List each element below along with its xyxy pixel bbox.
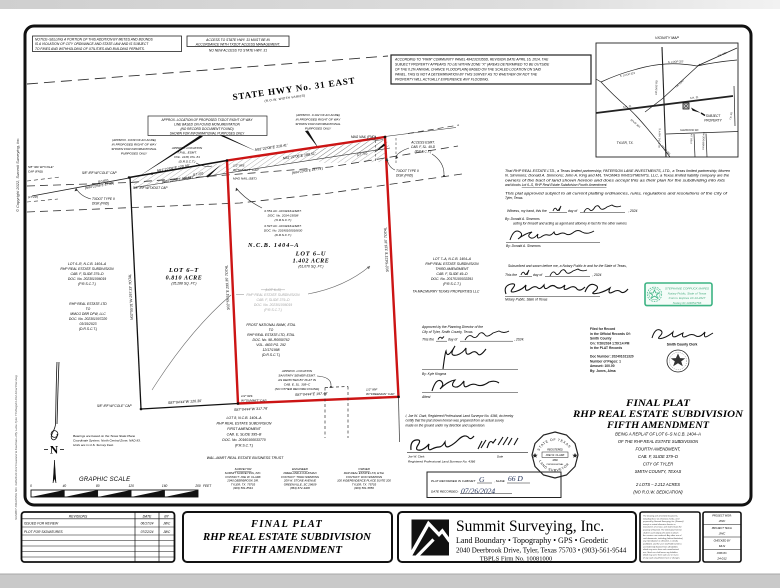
svg-text:NOTICE–SELLING A PORTION OF: NOTICE–SELLING A PORTION OF THIS ADDITIO… [35,38,153,42]
svg-text:(APPROX. 0.039 OF AN ACRE): (APPROX. 0.039 OF AN ACRE) [112,138,156,142]
svg-text:DOC. No. 2014-23008: DOC. No. 2014-23008 [268,214,299,218]
svg-text:06/17/24: 06/17/24 [141,522,154,526]
svg-text:ACCORDANCE WITH TXDOT ACCES: ACCORDANCE WITH TXDOT ACCESS MANAGEMENT. [195,42,281,46]
svg-text:, 2024: , 2024 [592,273,602,277]
svg-text:Summit Surveying, Inc.: Summit Surveying, Inc. [456,518,604,535]
svg-text:AS DEPICTED BY PLAT IN: AS DEPICTED BY PLAT IN [277,378,317,382]
svg-text:SUMMIT DRAWING NO. 4\2024\24-0: SUMMIT DRAWING NO. 4\2024\24-012 Freelan… [14,375,18,520]
svg-text:any reproduction or alterat: any reproduction or alteration, is stric… [643,540,679,543]
svg-text:Notary Public, State of Te: Notary Public, State of Texas [505,298,548,302]
svg-text:(903) 561-5856: (903) 561-5856 [354,486,374,490]
svg-text:FEET: FEET [203,484,212,488]
svg-text:TYLER, TX.: TYLER, TX. [616,141,633,145]
svg-text:5/8" IRF W/"COLE" CAP: 5/8" IRF W/"COLE" CAP [97,404,133,408]
svg-text:day of: day of [568,209,578,213]
svg-text:owners of the tract of la: owners of the tract of land shown hereon… [505,178,725,182]
svg-text:N: N [50,445,59,457]
svg-text:(D.R.S.C.T.): (D.R.S.C.T.) [79,327,97,331]
svg-text:SHOWN FOR INFORMATIONAL: SHOWN FOR INFORMATIONAL [295,122,341,126]
svg-text:TO FINES AND WITHHOLDING O: TO FINES AND WITHHOLDING OF UTILITIES AN… [35,47,145,51]
svg-text:Tyler, Texas.: Tyler, Texas. [505,196,523,200]
svg-text:MAG NAIL (SET): MAG NAIL (SET) [233,177,257,181]
svg-text:(35,288 SQ. FT.): (35,288 SQ. FT.) [171,282,196,286]
svg-text:FINAL PLAT: FINAL PLAT [250,519,323,530]
svg-text:80: 80 [96,484,100,488]
svg-text:W/"FREEMAN" CAP: W/"FREEMAN" CAP [366,392,395,396]
svg-text:LOT 8, N.C.B. 1404–A: LOT 8, N.C.B. 1404–A [226,416,262,420]
svg-text:CAB. E, SLIDE 395–B: CAB. E, SLIDE 395–B [227,433,262,437]
svg-text:This the: This the [422,338,434,342]
svg-text:REVISIONS: REVISIONS [69,514,88,518]
svg-text:VOL. 4603 PG. 292: VOL. 4603 PG. 292 [256,343,286,347]
svg-text:RHP REAL ESTATE SUBDIVISION: RHP REAL ESTATE SUBDIVISION [202,532,371,543]
svg-text:SMITH COUNTY, TEXAS: SMITH COUNTY, TEXAS [635,469,682,474]
svg-text:PURPOSES ONLY: PURPOSES ONLY [305,127,332,131]
svg-text:2040 Deerbrook Drive, Tyler: 2040 Deerbrook Drive, Tyler, Texas 75703… [456,547,627,555]
svg-text:4366: 4366 [552,459,558,462]
svg-text:in the Official Records Of:: in the Official Records Of: [590,332,631,336]
svg-text:DOC. No. 202301007220: DOC. No. 202301007220 [69,317,107,321]
svg-text:APPROX. LOCATION: APPROX. LOCATION [281,369,313,373]
svg-text:LOT 7–A, N.C.B. 1404–A: LOT 7–A, N.C.B. 1404–A [433,257,472,261]
svg-text:the services are rendered.: the services are rendered. Any other use… [643,534,682,537]
svg-text:GRAPHIC SCALE: GRAPHIC SCALE [79,477,131,483]
svg-text:FIFTH AMENDMENT: FIFTH AMENDMENT [606,421,710,431]
svg-text:W/"SUMMIT" CAP: W/"SUMMIT" CAP [241,398,267,402]
svg-text:That RHP REAL ESTATE LTD.,: That RHP REAL ESTATE LTD., a Texas limit… [505,169,730,173]
svg-text:RHP REAL ESTATE SUBDIVISION: RHP REAL ESTATE SUBDIVISION [246,293,300,297]
svg-text:acting for himself and act: acting for himself and acting as agent a… [513,222,627,226]
svg-text:Registered Professional Land: Registered Professional Land Surveyor No… [408,459,476,463]
svg-text:PLOT FOR SIGNATURES: PLOT FOR SIGNATURES [24,530,63,534]
svg-text:(903) 561-8544: (903) 561-8544 [233,486,253,490]
svg-text:160: 160 [162,484,168,488]
svg-text:said documents, including (: said documents, including (without limit… [643,537,683,540]
svg-text:03/15/2023: 03/15/2023 [80,322,97,326]
svg-text:SHOWN FOR INFORMATIONAL: SHOWN FOR INFORMATIONAL [111,147,157,151]
svg-text:CAB. F, SL. 49-D: CAB. F, SL. 49-D [411,145,436,149]
svg-text:OF THE 0.2% ANNUAL CHANCE: OF THE 0.2% ANNUAL CHANCE FLOODPLAIN) BA… [395,68,542,72]
svg-text:ACCESS ESMT.: ACCESS ESMT. [410,141,435,145]
svg-text:This plat approved subject: This plat approved subject to all curren… [505,192,729,196]
svg-text:JOB NO.: JOB NO. [717,551,728,555]
svg-text:MAG NAIL (FND): MAG NAIL (FND) [351,135,376,139]
svg-text:which may arise from such: which may arise from such use or reuse. [643,555,679,557]
svg-text:day of: day of [533,273,543,277]
svg-text:(864) 672-3406: (864) 672-3406 [290,486,310,490]
svg-text:Coordinate System, North Ce: Coordinate System, North Central Zone, N… [73,439,141,443]
svg-text:DOC. No. 202301006019: DOC. No. 202301006019 [68,277,106,281]
svg-text:PROFESSIONAL: PROFESSIONAL [546,463,564,466]
svg-text:12/17/1998: 12/17/1998 [263,348,280,352]
svg-text:0: 0 [30,484,32,488]
svg-text:DISK (FND): DISK (FND) [92,202,109,206]
svg-text:prohibited, and the user s: prohibited, and the user shall hold harm… [642,543,682,546]
svg-text:T.P.&L. ESMT.: T.P.&L. ESMT. [177,151,197,155]
svg-text:Witness, my hand, this the: Witness, my hand, this the [507,209,547,213]
svg-text:PROJECT MGR:: PROJECT MGR: [712,514,732,518]
svg-text:IS A VIOLATION OF CITY OR: IS A VIOLATION OF CITY ORDINANCE AND STA… [35,42,149,46]
svg-text:including those on electron: including those on electronic media, wer… [643,517,681,520]
svg-text:FIFTH AMENDMENT: FIFTH AMENDMENT [231,545,343,556]
svg-text:(P.R.S.C.T.): (P.R.S.C.T.) [443,282,461,286]
svg-text:THIRD AMENDMENT: THIRD AMENDMENT [435,267,469,271]
svg-text:This the: This the [505,273,517,277]
svg-text:DATE: DATE [143,514,153,518]
svg-text:LINE BASED ON FOUND MONUME: LINE BASED ON FOUND MONUMENTATION [174,123,240,127]
svg-text:Filed for Record: Filed for Record [590,327,615,331]
svg-text:(17.20'): (17.20') [28,195,38,199]
svg-text:(O.R.S.C.T.): (O.R.S.C.T.) [275,218,292,222]
svg-text:Comm. Expires 10-13-2027: Comm. Expires 10-13-2027 [669,296,706,300]
svg-text:LOT 6–R, N.C.B. 1404–A: LOT 6–R, N.C.B. 1404–A [68,262,107,266]
svg-text:SUBJECT PROPERTY APPEARS TO: SUBJECT PROPERTY APPEARS TO LIE WITHIN Z… [395,63,550,67]
svg-text:40: 40 [63,484,67,488]
svg-text:FM 2493 RD: FM 2493 RD [654,80,659,95]
svg-text:, 2024.: , 2024. [514,338,524,342]
svg-text:(D.R.S.C.T.): (D.R.S.C.T.) [179,160,196,164]
svg-text:CAB. F, SLIDE 379–D: CAB. F, SLIDE 379–D [638,454,678,459]
svg-text:JWC: JWC [719,532,726,536]
svg-text:, SLIDE: , SLIDE [494,479,506,483]
svg-text:MMCG DBR DFW, LLC: MMCG DBR DFW, LLC [70,312,106,316]
svg-text:DOC. No. 20160100033770: DOC. No. 20160100033770 [222,438,265,442]
svg-text:By: Kyle Kingma: By: Kyle Kingma [422,372,446,376]
svg-text:(P.R.S.C.T.): (P.R.S.C.T.) [264,308,282,312]
svg-text:BY: BY [164,514,169,518]
svg-text:DOC. No. 202301006019: DOC. No. 202301006019 [254,303,292,307]
svg-text:CAP (FND): CAP (FND) [28,169,43,173]
svg-text:DATE RECORDED:: DATE RECORDED: [431,490,459,494]
svg-text:SUBJECT: SUBJECT [706,114,722,118]
svg-text:ISSUED FOR REVIEW: ISSUED FOR REVIEW [24,522,59,526]
svg-text:PANEL. THIS IS NOT A DETE: PANEL. THIS IS NOT A DETERMINATION BY TH… [395,73,538,77]
svg-text:RHP REAL ESTATE SUBDIVISION: RHP REAL ESTATE SUBDIVISION [217,422,272,426]
svg-text:2 LOTS – 2.212 ACRES: 2 LOTS – 2.212 ACRES [635,482,680,487]
svg-text:APPROX. LOCATION: APPROX. LOCATION [171,146,203,150]
svg-text:N.C.B. 1404–A: N.C.B. 1404–A [247,242,300,249]
svg-text:TXDOT TYPE II: TXDOT TYPE II [92,197,115,201]
svg-text:(61,070 SQ. FT.): (61,070 SQ. FT.) [298,265,323,269]
svg-text:(D.R.S.C.T.): (D.R.S.C.T.) [262,353,280,357]
svg-text:and indemnify Summit from: and indemnify Summit from all liabilitie… [643,545,678,548]
svg-text:24-012: 24-012 [716,557,727,561]
svg-text:REGISTERED: REGISTERED [547,449,563,452]
svg-text:(NO OTHER RECORD FOUND): (NO OTHER RECORD FOUND) [275,387,320,391]
svg-text:120: 120 [129,484,135,488]
svg-text:which may arise from such: which may arise from such unauthorized [643,548,680,551]
svg-text:CAB. F, SLIDE 379–D: CAB. F, SLIDE 379–D [70,272,104,276]
svg-text:JWC: JWC [162,522,171,526]
svg-text:FINAL PLAT: FINAL PLAT [625,399,692,409]
svg-text:RHP REAL ESTATE SUBDIVISION: RHP REAL ESTATE SUBDIVISION [425,262,479,266]
svg-text:NO NEW ACCESS TO STATE HW: NO NEW ACCESS TO STATE HWY. 31 [209,48,267,52]
svg-text:N. Simmons; Donald A. Simm: N. Simmons; Donald A. Simmons; John A. K… [505,174,729,178]
svg-text:except as noted otherwise: except as noted otherwise therein as [643,523,676,526]
svg-text:VOL. 1138, PG. 81: VOL. 1138, PG. 81 [174,155,200,159]
svg-text:(D.R.S.C.T.): (D.R.S.C.T.) [275,233,292,237]
svg-text:FIRST AMENDMENT: FIRST AMENDMENT [227,427,261,431]
svg-text:DOC. No. 20170100033391: DOC. No. 20170100033391 [431,277,473,281]
svg-text:CAB. F, SLIDE 379–D: CAB. F, SLIDE 379–D [256,298,290,302]
svg-text:66 D: 66 D [508,474,523,483]
svg-text:07/26/2024: 07/26/2024 [461,487,495,496]
svg-text:By: Jones, Alma: By: Jones, Alma [590,369,616,373]
svg-text:In the PLAT Records: In the PLAT Records [590,346,622,350]
svg-text:Units are in U.S. Survey: Units are in U.S. Survey Feet. [73,443,114,447]
svg-text:CHECKED BY: CHECKED BY [714,539,731,543]
svg-text:TA MACMURRY TEXAS PROPERTIE: TA MACMURRY TEXAS PROPERTIES LLC [413,290,480,294]
svg-text:Approved by the Planning D: Approved by the Planning Director of the [421,325,483,329]
svg-text:GLENWOOD RD: GLENWOOD RD [680,129,699,132]
svg-text:W/"SUMMIT" CAP: W/"SUMMIT" CAP [233,168,259,172]
svg-text:5/8" IRF W/"COLE" CAP: 5/8" IRF W/"COLE" CAP [82,171,118,175]
svg-text:WAL–MART REAL ESTATE BUSINE: WAL–MART REAL ESTATE BUSINESS TRUST [207,456,285,460]
svg-text:VICINITY MAP: VICINITY MAP [655,36,679,40]
svg-text:Attest: Attest [421,395,432,399]
svg-text:(NO R.O.W. DEDICATION): (NO R.O.W. DEDICATION) [633,490,683,495]
svg-text:SHOWN FOR INFORMATIONAL PUR: SHOWN FOR INFORMATIONAL PURPOSES ONLY [170,132,245,136]
svg-text:of any such unauthorized u: of any such unauthorized use or changes. [643,557,681,560]
svg-text:Joe W. Clark: Joe W. Clark [408,455,425,459]
svg-text:property of Summit. The in: property of Summit. The information here… [642,529,683,532]
svg-text:Notary ID 134652766: Notary ID 134652766 [673,301,702,305]
svg-text:PLAT RECORDED IN CABINET: PLAT RECORDED IN CABINET [431,479,476,483]
svg-text:LOT 6–U: LOT 6–U [295,251,327,258]
svg-text:SANITARY SEWER ESMT.: SANITARY SEWER ESMT. [278,374,316,378]
svg-text:JWC: JWC [162,530,171,534]
svg-text:Doc Number: 202401021320: Doc Number: 202401021320 [590,355,634,359]
svg-text:City of Tyler, Smith Count: City of Tyler, Smith County, Texas. [422,330,473,334]
svg-text:By: Donald A. Simmons: By: Donald A. Simmons [505,217,540,221]
svg-text:Land Boundary • Topography: Land Boundary • Topography • GPS • Geode… [456,536,609,545]
svg-text:DISK (FND): DISK (FND) [396,174,413,178]
svg-text:Number of Pages: 1: Number of Pages: 1 [590,359,621,363]
svg-text:(APPROX. 0.102 OF AN ACRE): (APPROX. 0.102 OF AN ACRE) [296,113,340,117]
svg-text:FROST NATIONAL BANK, ETAL: FROST NATIONAL BANK, ETAL [246,323,295,327]
svg-text:day of: day of [448,338,458,342]
svg-text:PURPOSES ONLY: PURPOSES ONLY [121,152,148,156]
svg-text:FOURTH AMENDMENT,: FOURTH AMENDMENT, [635,447,680,452]
svg-text:TBPLS Firm No. 10081000: TBPLS Firm No. 10081000 [480,556,553,563]
svg-text:S. LOOP 323: S. LOOP 323 [668,59,684,64]
svg-text:TO: TO [269,328,274,332]
svg-text:IN PROPOSED RIGHT OF WAY: IN PROPOSED RIGHT OF WAY [296,118,342,122]
svg-text:By: Donald A. Simmons: By: Donald A. Simmons [506,244,541,248]
svg-text:RHP REAL ESTATE LTD, ETAL: RHP REAL ESTATE LTD, ETAL [247,333,295,337]
svg-text:I, Joe W. Clark, Registere: I, Joe W. Clark, Registered Professional… [406,414,514,418]
svg-text:TXDOT TYPE II: TXDOT TYPE II [396,169,419,173]
svg-text:APPROX. LOCATION OF PROPOSE: APPROX. LOCATION OF PROPOSED TXDOT RIGHT… [161,118,254,122]
svg-text:RHP REAL ESTATE SUBDIVISION: RHP REAL ESTATE SUBDIVISION [60,267,114,271]
svg-text:use. Such use shall never: use. Such use shall never any liabilitie… [643,551,678,554]
svg-text:prepared by Summit Surveyin: prepared by Summit Surveying, Inc. (Summ… [642,520,684,523]
svg-text:CAB. E, SL. 305–C: CAB. E, SL. 305–C [284,383,311,387]
svg-text:Bearings are based on the: Bearings are based on the Texas State Pl… [73,434,135,438]
svg-text:(P.R.S.C.T.): (P.R.S.C.T.) [235,444,253,448]
svg-text:MLN: MLN [719,544,726,548]
svg-text:DOC. No. 20190100016630: DOC. No. 20190100016630 [264,229,303,233]
svg-text:certify that the plat show: certify that the plat shown hereon was p… [406,419,505,423]
svg-text:0.547 AC. ACCESS ESMT.: 0.547 AC. ACCESS ESMT. [264,224,302,228]
svg-text:PROPERTY: PROPERTY [704,119,722,123]
svg-text:STEPHANIE COPPUCK MAPES: STEPHANIE COPPUCK MAPES [665,287,709,291]
svg-text:Amount: 100.00: Amount: 100.00 [590,364,615,368]
svg-text:PROJECT TECH.: PROJECT TECH. [712,526,733,530]
svg-text:IN PROPOSED RIGHT OF WAY: IN PROPOSED RIGHT OF WAY [112,143,158,147]
svg-text:LOT 6–T: LOT 6–T [168,267,199,274]
svg-text:DOC. No. 98–R0050762: DOC. No. 98–R0050762 [253,338,290,342]
svg-text:JWC: JWC [719,519,726,523]
svg-text:PROPERTY WILL ACTUALLY EXPE: PROPERTY WILL ACTUALLY EXPERIENCE ANY FL… [395,78,489,82]
svg-text:On: 7/26/2024 1:59:14 PM: On: 7/26/2024 1:59:14 PM [590,341,630,345]
svg-text:ACCESS TO STATE HWY. 31 M: ACCESS TO STATE HWY. 31 MUST BE IN [205,38,270,42]
svg-text:G: G [479,475,485,484]
svg-text:Date: Date [497,455,503,459]
svg-text:OF THE RHP REAL ESTATE SU: OF THE RHP REAL ESTATE SUBDIVISION [618,439,698,444]
svg-text:Smith County: Smith County [590,337,612,341]
svg-text:ACCORDING TO "FIRM" COMMUNI: ACCORDING TO "FIRM" COMMUNITY PANEL 4842… [394,58,549,62]
svg-text:Notary Public, State of Te: Notary Public, State of Texas [668,291,707,295]
svg-text:Subscribed and sworn before: Subscribed and sworn before me, a Notary… [508,264,627,268]
svg-text:CAB. F, SLIDE 49–D: CAB. F, SLIDE 49–D [436,272,468,276]
svg-text:, 2024: , 2024 [628,209,638,213]
svg-text:RHP REAL ESTATE LTD: RHP REAL ESTATE LTD [69,302,107,306]
svg-text:instruments of service, and: instruments of service, and shall remain… [643,526,682,529]
svg-text:JOE W. CLARK: JOE W. CLARK [546,453,565,457]
svg-text:07/22/24: 07/22/24 [141,530,154,534]
svg-text:(P.R.S.C.T.): (P.R.S.C.T.) [415,150,432,154]
svg-text:200: 200 [194,484,201,488]
svg-text:(NO RECORD DOCUMENT FOUND): (NO RECORD DOCUMENT FOUND) [180,127,233,131]
svg-text:BEING A REPLAT OF LOT 6–S: BEING A REPLAT OF LOT 6–S N.C.B. 1404–A [615,432,701,437]
svg-text:Smith County Clerk: Smith County Clerk [667,343,698,347]
svg-text:TO: TO [86,307,91,311]
svg-text:RHP REAL ESTATE SUBDIVISION: RHP REAL ESTATE SUBDIVISION [572,410,745,420]
svg-text:SYBIL LN: SYBIL LN [691,134,693,144]
svg-text:The drawing and all relate: The drawing and all related documents, [643,515,678,518]
svg-text:and blocks Lot 6–S, RHP R: and blocks Lot 6–S, RHP Real Estate Subd… [505,183,608,187]
svg-text:0.551 AC. ACCESS ESMT.: 0.551 AC. ACCESS ESMT. [264,209,302,213]
svg-text:© Copyright 2022, Summit Surve: © Copyright 2022, Summit Surveying, Inc. [15,137,20,212]
svg-text:(P.R.S.C.T.): (P.R.S.C.T.) [78,282,96,286]
svg-text:shall be used only by the: shall be used only by the client to whom [643,531,679,534]
svg-text:made on the ground under: made on the ground under my direction an… [406,423,486,427]
svg-text:5/8" IRF W/TXDOT CAP: 5/8" IRF W/TXDOT CAP [133,186,168,190]
svg-text:CITY OF TYLER: CITY OF TYLER [643,462,673,467]
